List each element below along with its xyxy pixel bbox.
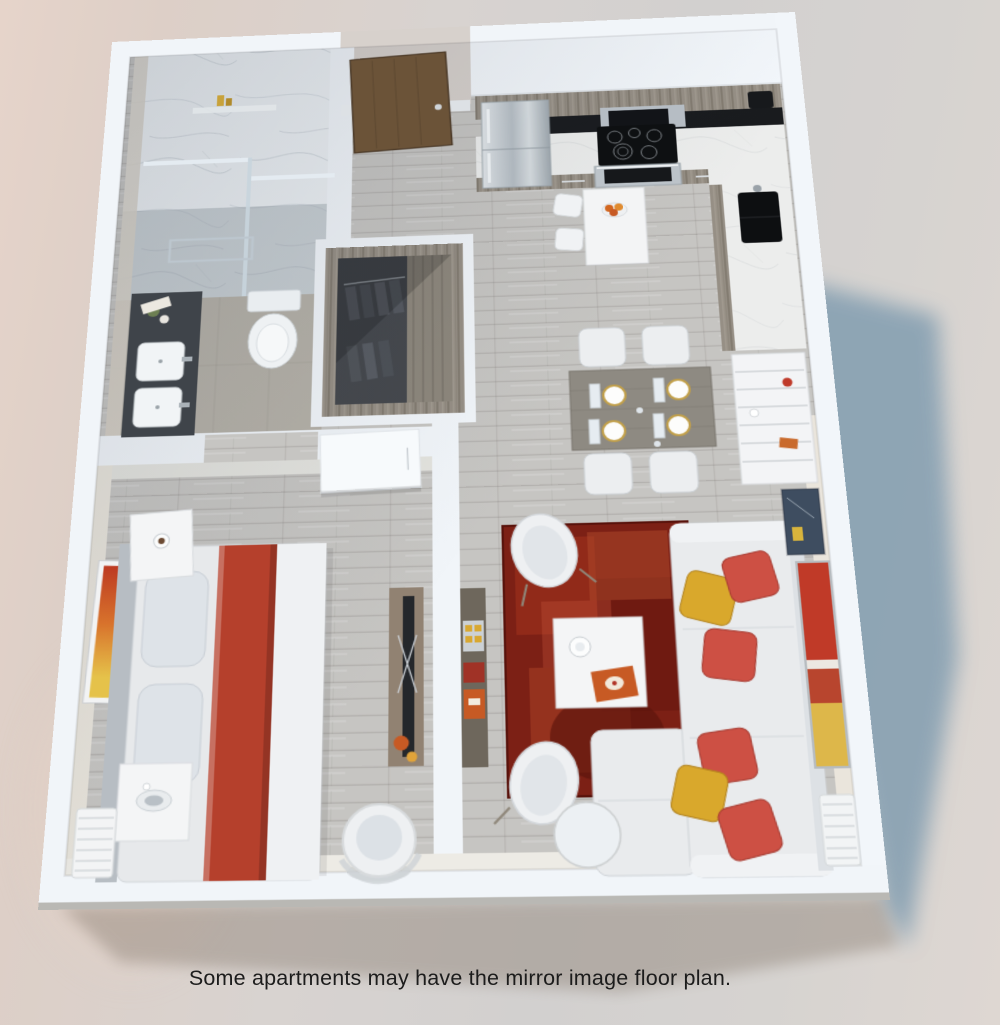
faucet [179, 402, 190, 407]
dining-chair [584, 453, 633, 495]
sofa-armrest [690, 853, 834, 877]
napkin [653, 414, 665, 438]
floor-plan [38, 12, 890, 910]
entry-door-leaf [350, 52, 452, 153]
dining-chair [649, 451, 699, 493]
napkin [653, 378, 664, 402]
floor-plan-svg [38, 12, 890, 910]
red-box [463, 662, 484, 683]
microwave-window [608, 109, 669, 127]
kitchen-sink [737, 184, 783, 243]
plate [667, 415, 691, 436]
radiator [72, 808, 117, 878]
oven [595, 163, 682, 187]
magazine [591, 665, 639, 702]
plate [602, 421, 625, 442]
wall-art-dark [781, 489, 824, 555]
vase [749, 409, 759, 417]
napkin [590, 384, 601, 408]
sofa-armrest [669, 521, 802, 543]
dining-chair [641, 325, 690, 365]
bedroom-door-opening [204, 432, 318, 463]
counter-table [583, 187, 648, 265]
foot-table [115, 763, 193, 842]
decor [143, 783, 150, 790]
sideboard [460, 588, 488, 768]
shampoo-bottle [217, 95, 225, 106]
lounge-chair [341, 804, 419, 882]
radiator [819, 794, 861, 865]
cooktop [597, 124, 678, 167]
stool [555, 228, 584, 251]
plate [603, 385, 626, 405]
coffee-table [553, 617, 647, 708]
red-pillow [701, 628, 757, 683]
bed-pillow [140, 571, 209, 667]
faucet [182, 357, 193, 362]
entry-door [350, 52, 452, 153]
books [779, 437, 798, 449]
coffee-maker [747, 91, 773, 109]
nightstand [130, 510, 193, 582]
tv-screen [402, 596, 414, 757]
shampoo-bottle [226, 98, 232, 106]
dining-chair [578, 327, 626, 367]
sliding-door [320, 429, 421, 497]
screenshot-root: Some apartments may have the mirror imag… [0, 0, 1000, 1025]
plate [667, 379, 691, 399]
napkin [589, 420, 600, 444]
vanity [121, 291, 202, 437]
tv-console [388, 587, 424, 766]
caption: Some apartments may have the mirror imag… [0, 966, 920, 991]
refrigerator [481, 100, 551, 188]
shelving-unit [731, 352, 817, 484]
stool [553, 193, 584, 217]
